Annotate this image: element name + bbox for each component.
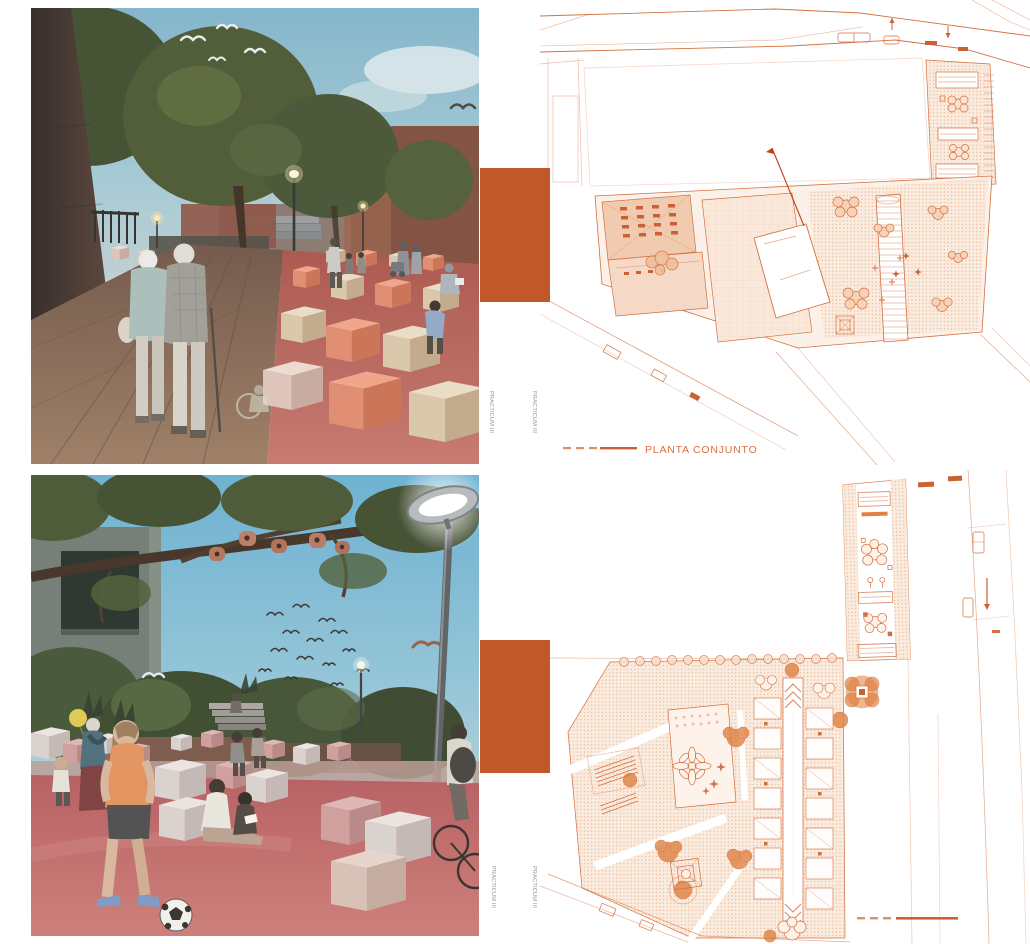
plan-strip — [843, 479, 911, 661]
presentation-board: PRACTICUM III PRACTICUM III PRACTICUM II… — [0, 0, 1030, 944]
practicum-label-2: PRACTICUM III — [531, 391, 537, 433]
plan-paseo — [783, 678, 803, 932]
plan-caption: PLANTA CONJUNTO — [645, 444, 758, 456]
practicum-label-3: PRACTICUM III — [490, 866, 496, 908]
plan-scale-bar — [857, 917, 958, 920]
practicum-label-4: PRACTICUM III — [531, 866, 537, 908]
rendering-plaza-elderly — [31, 8, 479, 464]
site-plan-conjunto — [540, 0, 1030, 465]
plan-right-strip — [926, 60, 996, 188]
accent-block-top — [480, 168, 550, 302]
plan-right-road — [963, 470, 1026, 944]
rendering-plaza-children — [31, 475, 479, 936]
plan-empty-parcel — [584, 58, 930, 186]
practicum-label-1: PRACTICUM III — [488, 391, 494, 433]
site-plan-detail — [540, 470, 1030, 944]
plan-ornamental-tree — [845, 676, 879, 708]
accent-block-bottom — [480, 640, 550, 773]
plan-scale-bar — [563, 447, 637, 449]
plan-roads-top — [540, 0, 1030, 68]
